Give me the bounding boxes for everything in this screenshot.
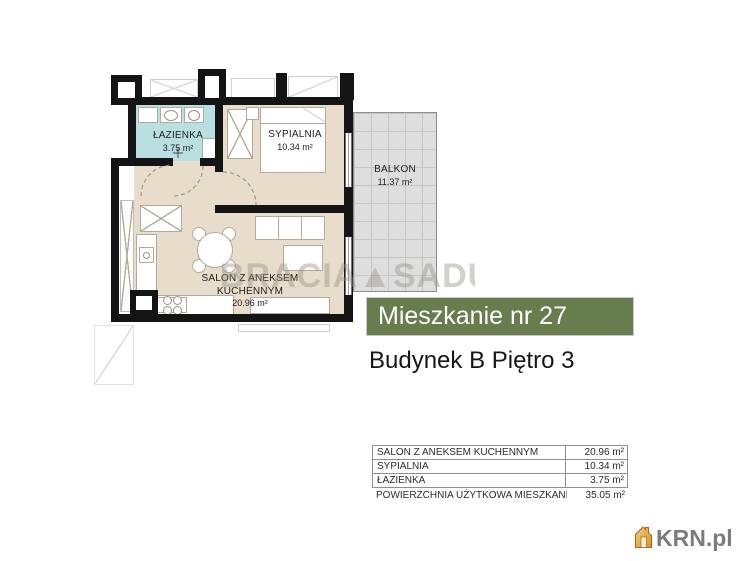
wall <box>115 97 347 105</box>
neighbor-fixture <box>231 78 275 98</box>
room-area-cell: 3.75 m² <box>565 474 627 487</box>
neighbor-fixture <box>150 79 198 98</box>
watermark: BRACIA▲SADU <box>220 257 475 299</box>
wall-column <box>276 73 287 98</box>
window-sill <box>238 324 330 332</box>
neighbor-fixture <box>94 325 134 385</box>
wall <box>340 73 354 100</box>
krn-logo-text: KRN.pl <box>656 527 733 550</box>
area-table: SALON Z ANEKSEM KUCHENNYM 20.96 m² SYPIA… <box>372 445 628 503</box>
room-area-cell: 10.34 m² <box>565 460 627 473</box>
sofa <box>255 216 325 240</box>
wall-column <box>111 75 142 105</box>
wall <box>111 158 173 166</box>
nightstand <box>246 107 259 120</box>
table-row: SYPIALNIA 10.34 m² <box>373 460 627 474</box>
kitchen-sink <box>139 247 154 263</box>
washbasin <box>160 107 182 123</box>
total-label-cell: POWIERZCHNIA UŻYTKOWA MIESZKANIA <box>372 488 567 503</box>
room-label-bedroom: SYPIALNIA 10.34 m² <box>255 129 335 153</box>
neighbor-fixture <box>288 76 338 98</box>
toilet <box>184 107 204 123</box>
table-row: SALON Z ANEKSEM KUCHENNYM 20.96 m² <box>373 446 627 460</box>
listing-page: ŁAZIENKA 3.75 m² SYPIALNIA 10.34 m² BALK… <box>0 0 740 561</box>
wall <box>215 105 223 172</box>
apartment-banner: Mieszkanie nr 27 <box>366 297 634 336</box>
kitchen-counter-left <box>136 234 157 294</box>
washing-machine <box>138 107 158 123</box>
wall <box>215 205 352 213</box>
room-label-balcony: BALKON 11.37 m² <box>353 164 437 188</box>
total-area-cell: 35.05 m² <box>567 488 628 503</box>
bedroom-window <box>345 133 352 187</box>
building-floor-subtitle: Budynek B Piętro 3 <box>369 347 649 375</box>
wall-column <box>130 290 158 316</box>
room-label-bathroom: ŁAZIENKA 3.75 m² <box>143 130 213 154</box>
banner-title: Mieszkanie nr 27 <box>378 302 567 330</box>
table-row: ŁAZIENKA 3.75 m² <box>373 474 627 487</box>
wall-column <box>198 69 226 105</box>
wall <box>128 105 136 163</box>
hall-wardrobe <box>140 205 182 232</box>
room-name-cell: SYPIALNIA <box>373 460 565 473</box>
room-name-cell: SALON Z ANEKSEM KUCHENNYM <box>373 446 565 459</box>
wall <box>111 158 119 322</box>
area-table-body: SALON Z ANEKSEM KUCHENNYM 20.96 m² SYPIA… <box>372 445 628 488</box>
table-total-row: POWIERZCHNIA UŻYTKOWA MIESZKANIA 35.05 m… <box>372 488 628 503</box>
room-area-cell: 20.96 m² <box>565 446 627 459</box>
krn-logo: KRN.pl <box>633 523 737 550</box>
room-name-cell: ŁAZIENKA <box>373 474 565 487</box>
house-icon <box>633 524 654 550</box>
